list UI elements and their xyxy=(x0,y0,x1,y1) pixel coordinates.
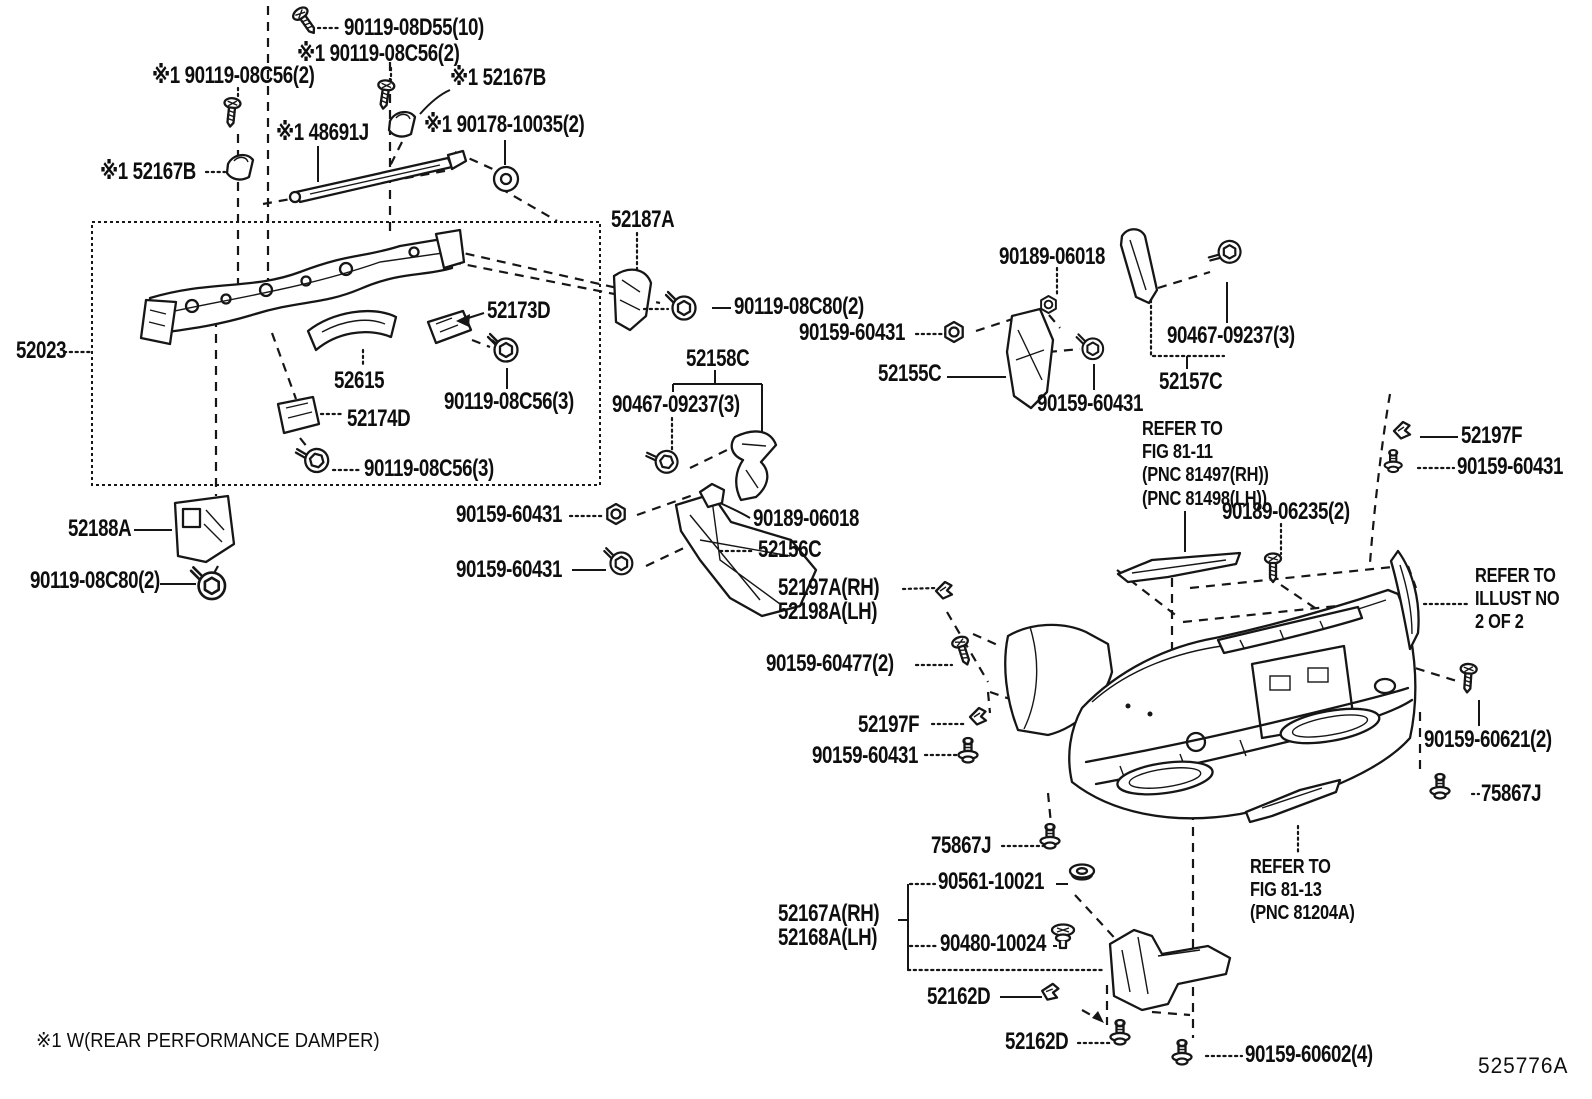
part-label-52187a: 52187A xyxy=(611,208,674,232)
part-label-52157c: 52157C xyxy=(1159,370,1222,394)
part-label-1-90119-08c56-2: ※1 90119-08C56(2) xyxy=(297,42,459,66)
part-label-90480-10024: 90480-10024 xyxy=(940,932,1046,956)
sketch-52188A xyxy=(175,496,234,562)
part-label-90189-06018: 90189-06018 xyxy=(753,507,859,531)
part-label-90159-60431: 90159-60431 xyxy=(1037,392,1143,416)
part-label-52167a-rh: 52167A(RH) xyxy=(778,902,879,926)
sketch-52615 xyxy=(308,311,396,350)
part-label-52023: 52023 xyxy=(16,339,66,363)
sketch-52167B-top xyxy=(389,112,415,136)
part-label-90119-08c80-2: 90119-08C80(2) xyxy=(734,295,864,319)
part-label-52162d: 52162D xyxy=(927,985,990,1009)
part-label-90119-08c80-2: 90119-08C80(2) xyxy=(30,569,160,593)
part-label-52615: 52615 xyxy=(334,369,384,393)
sketch-52167B-left xyxy=(227,155,253,179)
part-label-90159-60602-4: 90159-60602(4) xyxy=(1245,1043,1373,1067)
sketch-reinforcement-beam xyxy=(141,230,464,344)
sketch-bumper-cover xyxy=(1069,590,1415,818)
parts-diagram-page: 90119-08D55(10)※1 90119-08C56(2)※1 90119… xyxy=(0,0,1592,1099)
note-label-refer-to-illust-no-2-of-2: REFER TO ILLUST NO 2 OF 2 xyxy=(1475,565,1559,635)
part-label-52197f: 52197F xyxy=(858,713,919,737)
part-label-90467-09237-3: 90467-09237(3) xyxy=(612,393,740,417)
part-label-90159-60431: 90159-60431 xyxy=(812,744,918,768)
sketch-52173D xyxy=(428,311,471,343)
part-label-52173d: 52173D xyxy=(487,299,550,323)
part-label-52156c: 52156C xyxy=(758,538,821,562)
part-label-90119-08c56-3: 90119-08C56(3) xyxy=(364,457,494,481)
part-label-52198a-lh: 52198A(LH) xyxy=(778,600,877,624)
part-label-90159-60477-2: 90159-60477(2) xyxy=(766,652,894,676)
part-label-52155c: 52155C xyxy=(878,362,941,386)
part-label-1-48691j: ※1 48691J xyxy=(276,121,369,145)
part-label-52197a-rh: 52197A(RH) xyxy=(778,576,879,600)
part-label-1-52167b: ※1 52167B xyxy=(100,160,196,184)
drawing-code-label-525776a: 525776A xyxy=(1478,1053,1568,1079)
note-label-refer-to-fig-81-11-pnc-81497-rh-pnc-81498-lh: REFER TO FIG 81-11 (PNC 81497(RH)) (PNC … xyxy=(1142,418,1269,511)
part-label-52188a: 52188A xyxy=(68,517,131,541)
sketch-52158C xyxy=(732,431,776,500)
part-label-90467-09237-3: 90467-09237(3) xyxy=(1167,324,1295,348)
footnote-label-1-w-rear-performance-damper: ※1 W(REAR PERFORMANCE DAMPER) xyxy=(36,1028,380,1053)
part-label-52158c: 52158C xyxy=(686,347,749,371)
part-label-90159-60431: 90159-60431 xyxy=(456,503,562,527)
sketch-deck-strip xyxy=(1118,553,1240,582)
part-label-1-52167b: ※1 52167B xyxy=(450,66,546,90)
part-label-75867j: 75867J xyxy=(931,834,991,858)
sketch-mudguard xyxy=(1110,930,1230,1010)
part-label-90159-60621-2: 90159-60621(2) xyxy=(1424,728,1552,752)
part-label-1-90119-08c56-2: ※1 90119-08C56(2) xyxy=(152,64,314,88)
sketch-52187A xyxy=(614,270,651,330)
part-label-90159-60431: 90159-60431 xyxy=(456,558,562,582)
part-label-52162d: 52162D xyxy=(1005,1030,1068,1054)
part-label-52174d: 52174D xyxy=(347,407,410,431)
sketch-damper-rod xyxy=(290,151,466,202)
part-label-90119-08d55-10: 90119-08D55(10) xyxy=(344,16,484,40)
part-label-1-90178-10035-2: ※1 90178-10035(2) xyxy=(424,113,584,137)
part-label-90189-06018: 90189-06018 xyxy=(999,245,1105,269)
part-label-90119-08c56-3: 90119-08C56(3) xyxy=(444,390,574,414)
part-label-90159-60431: 90159-60431 xyxy=(799,321,905,345)
part-label-90159-60431: 90159-60431 xyxy=(1457,455,1563,479)
note-label-refer-to-fig-81-13-pnc-81204a: REFER TO FIG 81-13 (PNC 81204A) xyxy=(1250,856,1355,926)
part-label-75867j: 75867J xyxy=(1481,782,1541,806)
part-label-90561-10021: 90561-10021 xyxy=(938,870,1044,894)
part-label-52197f: 52197F xyxy=(1461,424,1522,448)
part-label-52168a-lh: 52168A(LH) xyxy=(778,926,877,950)
